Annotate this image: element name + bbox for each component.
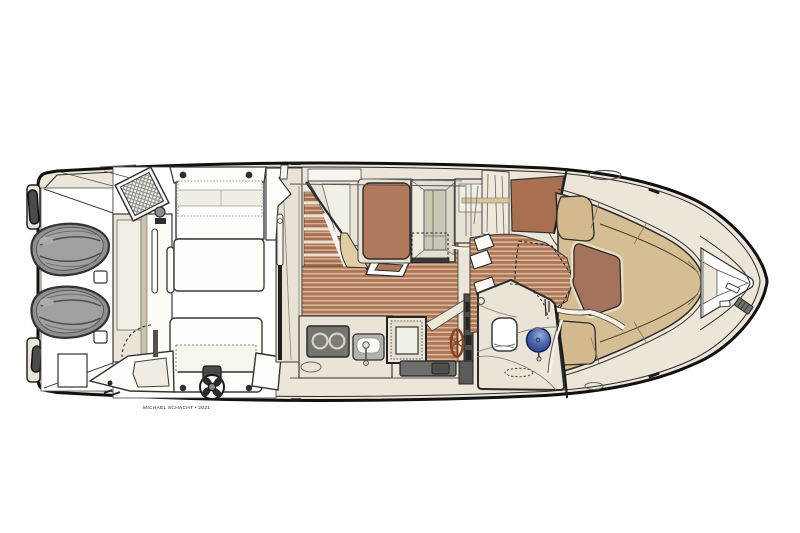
svg-text:MICHAEL SCHACHT • 2021: MICHAEL SCHACHT • 2021: [143, 405, 210, 411]
